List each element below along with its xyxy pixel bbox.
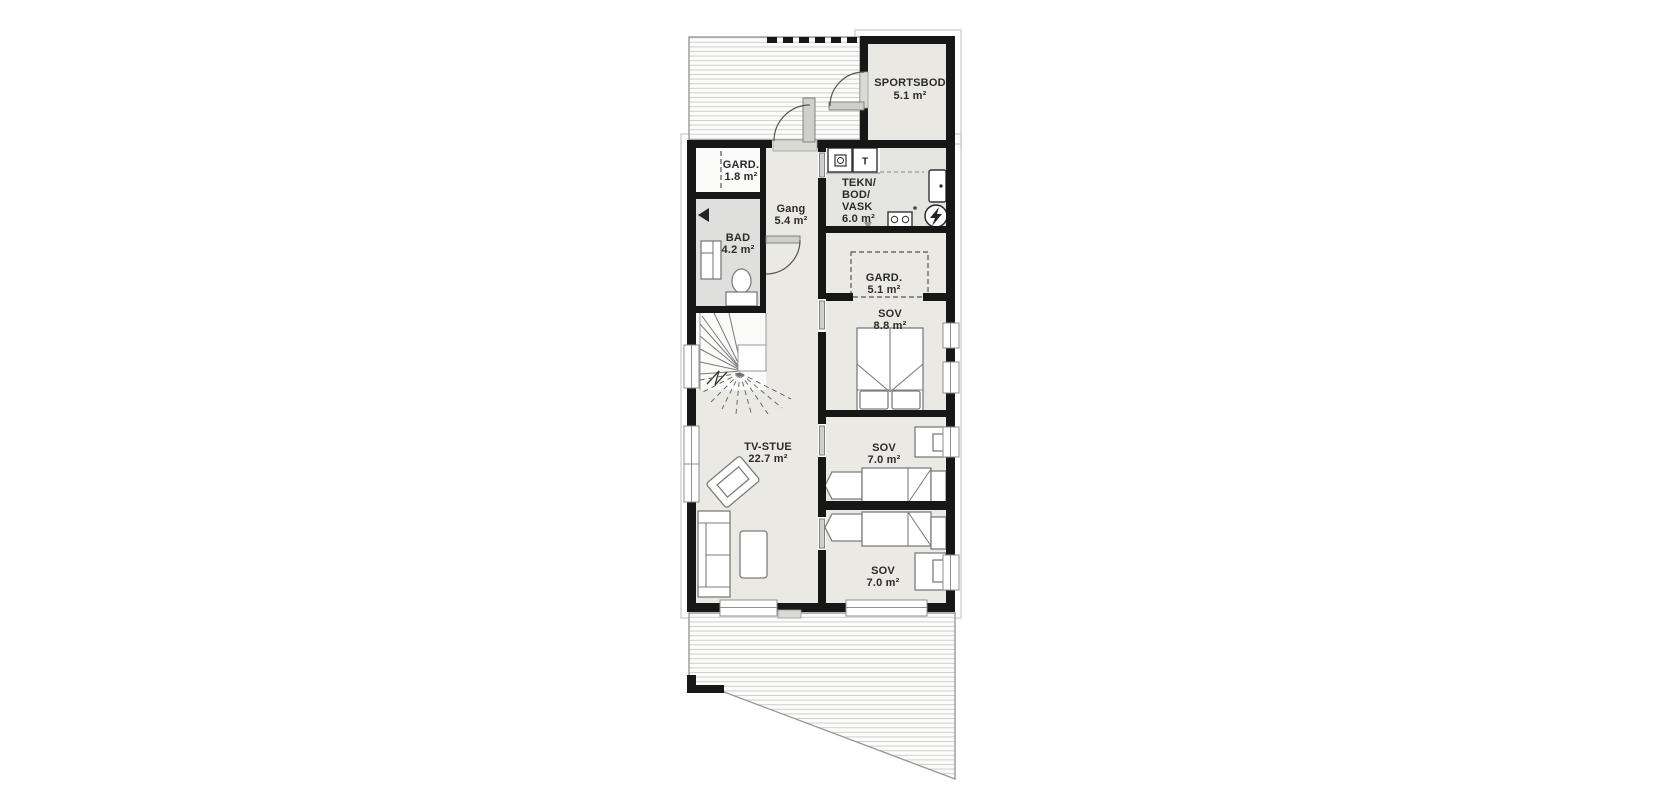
- room-label-tv-stue: TV-STUE: [744, 441, 792, 453]
- pillow: [860, 391, 888, 409]
- deck-bottom-surface: [689, 613, 955, 779]
- sink-cabinet: [701, 241, 721, 279]
- sofa: [698, 511, 730, 597]
- floor-plan-canvas: T: [0, 0, 1670, 800]
- bad-door-leaf: [766, 236, 800, 243]
- toilet-tank: [726, 292, 757, 306]
- sov-7-0-b-door-leaf: [820, 519, 825, 548]
- room-area-sportsbod: 5.1 m²: [894, 90, 927, 102]
- room-label-sportsbod: SPORTSBOD: [874, 77, 945, 89]
- room-label-gard-entre: GARD.: [723, 159, 759, 171]
- deck-bottom: [687, 613, 955, 779]
- sportsbod-door-leaf: [829, 102, 864, 110]
- dryer-letter: T: [862, 157, 868, 168]
- room-label-sov-8-8: SOV: [878, 308, 902, 320]
- room-label-tekn-3: VASK: [842, 201, 873, 213]
- washer-icon: [828, 148, 852, 172]
- room-area-bad: 4.2 m²: [722, 244, 755, 256]
- stair-landing: [738, 345, 766, 371]
- tekn-door-leaf: [820, 153, 825, 177]
- pillow: [825, 472, 862, 499]
- room-area-gard-entre: 1.8 m²: [725, 171, 758, 183]
- room-area-gang: 5.4 m²: [775, 215, 808, 227]
- room-area-gard-sov: 5.1 m²: [868, 284, 901, 296]
- garden-step: [778, 610, 801, 618]
- sov-8-8-door-leaf: [820, 301, 825, 329]
- single-bed: [862, 512, 931, 546]
- room-area-tv-stue: 22.7 m²: [748, 453, 787, 465]
- water-heater-icon: [929, 170, 946, 202]
- single-bed: [862, 468, 931, 503]
- floor-plan-page: T: [0, 0, 1670, 800]
- room-area-tekn: 6.0 m²: [842, 213, 875, 225]
- room-label-gard-sov: GARD.: [866, 272, 902, 284]
- side-table: [931, 517, 946, 549]
- room-area-sov-8-8: 8.8 m²: [874, 320, 907, 332]
- room-label-tekn-1: TEKN/: [842, 177, 876, 189]
- side-table: [931, 471, 946, 502]
- room-area-sov-7-0-b: 7.0 m²: [867, 577, 900, 589]
- room-label-sov-7-0-a: SOV: [872, 442, 896, 454]
- toilet-bowl: [732, 269, 751, 293]
- sov-8-8-furniture: [857, 328, 923, 412]
- pillow: [892, 391, 920, 409]
- room-label-gang: Gang: [777, 203, 806, 215]
- water-heater-dot: [939, 184, 942, 187]
- pillow: [825, 514, 862, 541]
- sov-7-0-a-door-leaf: [820, 426, 825, 455]
- room-label-bad: BAD: [726, 232, 750, 244]
- room-area-sov-7-0-a: 7.0 m²: [868, 454, 901, 466]
- small-dot: [913, 206, 917, 210]
- room-label-sov-7-0-b: SOV: [871, 565, 895, 577]
- room-label-tekn-2: BOD/: [842, 189, 870, 201]
- coffee-table: [740, 531, 767, 578]
